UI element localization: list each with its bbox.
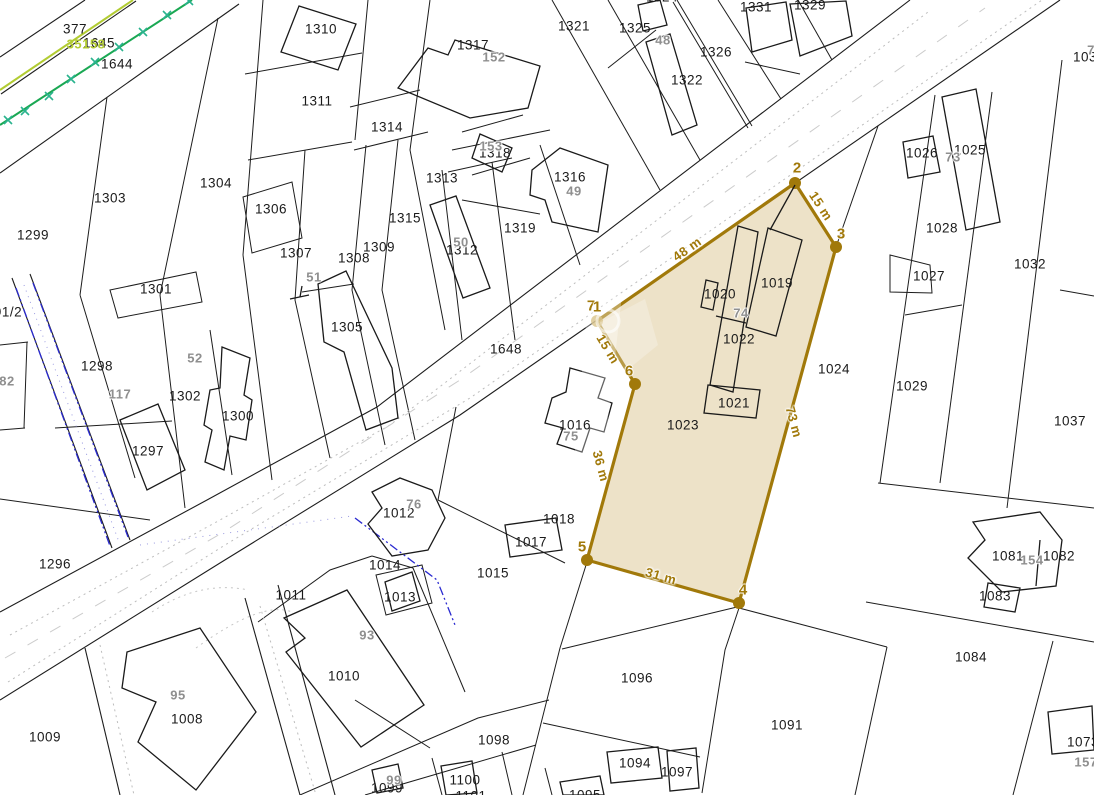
building-1095 [560, 776, 604, 795]
building-73 [942, 89, 1000, 230]
road-lower-edge [0, 0, 1060, 700]
highlighted-parcel-group[interactable] [581, 177, 842, 609]
building-1331 [746, 2, 792, 52]
yellowgreen-line [0, 0, 133, 90]
building-154 [968, 512, 1062, 592]
channel-banks [12, 274, 130, 548]
survey-vertex-dot[interactable] [789, 177, 801, 189]
building-48 [646, 34, 697, 135]
parcel-linework [0, 0, 1094, 795]
green-utility-lines [0, 0, 193, 125]
corridor-line [0, 0, 85, 57]
cadastral-map-view[interactable]: 3771645164413101311131413171321132513241… [0, 0, 1094, 795]
highlight-parcel-polygon[interactable] [587, 183, 836, 603]
building-1083 [984, 583, 1020, 612]
road-linework [0, 0, 1060, 795]
building-95 [122, 628, 256, 790]
building-50 [430, 196, 490, 298]
mark-51 [290, 286, 309, 299]
building-51 [318, 271, 398, 430]
building-157 [1048, 706, 1094, 754]
building-1094 [607, 747, 662, 783]
building-divider-1081 [1036, 540, 1040, 586]
building-93 [284, 590, 424, 747]
road-markings [5, 0, 1042, 795]
lane-edge [85, 648, 120, 795]
building-1097 [667, 748, 699, 791]
building-49 [530, 148, 608, 232]
building-1329 [790, 1, 852, 56]
building-small-top [638, 0, 667, 31]
building-1026 [903, 136, 940, 178]
building-153 [472, 134, 512, 172]
map-canvas[interactable] [0, 0, 1094, 795]
building-76 [368, 478, 445, 556]
survey-vertex-dot[interactable] [581, 554, 593, 566]
survey-vertex-dot[interactable] [629, 378, 641, 390]
building-1100 [441, 761, 477, 795]
lane-edges [245, 585, 335, 795]
survey-vertex-dot[interactable] [733, 597, 745, 609]
building-1013 [385, 572, 420, 611]
survey-vertex-dot[interactable] [830, 241, 842, 253]
building-117 [120, 404, 185, 490]
blue-drainage-line [16, 283, 455, 625]
